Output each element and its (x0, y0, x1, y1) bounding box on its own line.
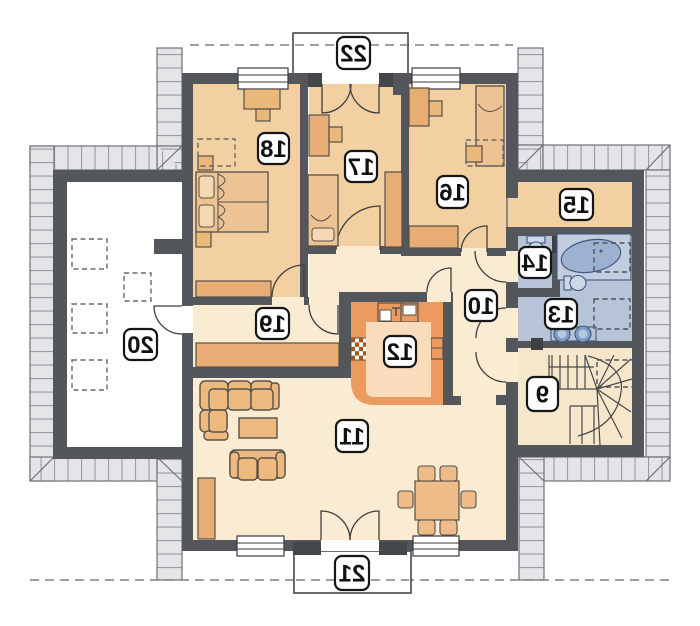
svg-text:21: 21 (339, 561, 366, 588)
svg-text:11: 11 (339, 424, 364, 451)
svg-text:19: 19 (259, 311, 286, 338)
svg-text:13: 13 (548, 302, 575, 329)
svg-text:22: 22 (340, 41, 367, 68)
svg-text:12: 12 (387, 339, 414, 366)
svg-text:20: 20 (127, 332, 154, 359)
svg-text:9: 9 (536, 382, 549, 409)
svg-text:17: 17 (348, 154, 375, 181)
svg-text:16: 16 (439, 180, 466, 207)
svg-text:10: 10 (468, 293, 495, 320)
svg-text:18: 18 (260, 136, 287, 163)
svg-text:15: 15 (563, 192, 590, 219)
svg-text:14: 14 (521, 250, 548, 277)
